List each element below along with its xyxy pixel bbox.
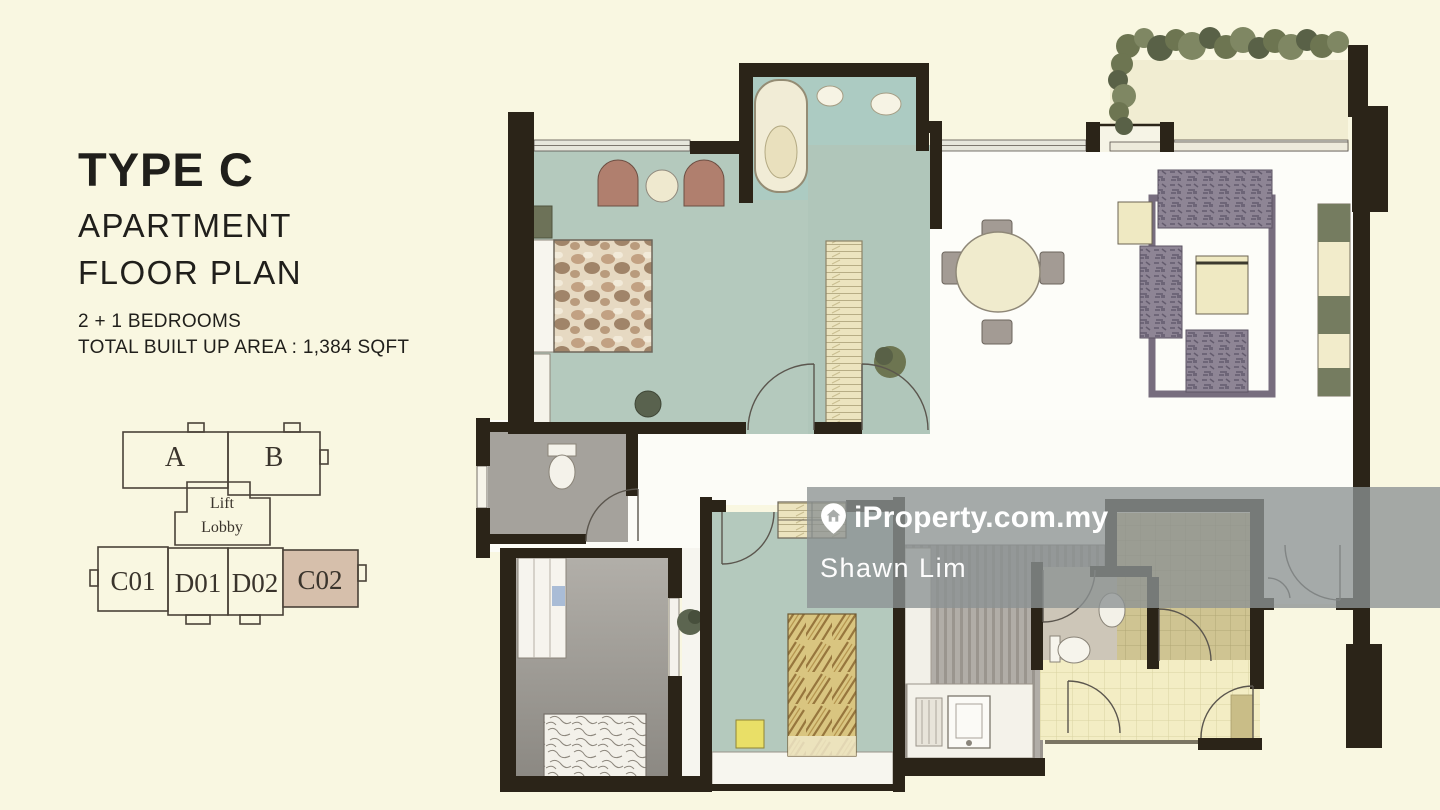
balcony-sliding-door: [1110, 142, 1348, 151]
bedroom3-plant-inner: [688, 610, 702, 624]
tv-console-plant-2: [1318, 296, 1350, 334]
bedroom3-door-leaf: [669, 598, 679, 678]
basin-2: [871, 93, 901, 115]
wall-right-column: [1346, 644, 1382, 748]
wall-yard-bottom-right: [1198, 738, 1262, 750]
wall-bed3-right-top: [668, 548, 682, 598]
bedroom3-bed: [544, 714, 646, 782]
yard-floor: [1040, 660, 1260, 740]
floor-plan: [0, 0, 1440, 810]
key-plan-unit-b: B: [265, 442, 284, 473]
wall-entry-jamb-left: [1086, 122, 1100, 152]
wall-step: [916, 121, 942, 133]
wall-tub-right: [916, 63, 929, 151]
wall-right-mid: [1353, 212, 1370, 434]
wall-foyer-left-bottom: [476, 508, 490, 558]
wall-bath2-right: [626, 424, 638, 496]
side-table-round: [646, 170, 678, 202]
wall-entry-jamb-right: [1160, 122, 1174, 152]
info-panel: TYPE C APARTMENT FLOOR PLAN 2 + 1 BEDROO…: [78, 146, 409, 360]
bedroom2-bed: [788, 614, 856, 756]
armchair-living: [1186, 330, 1248, 392]
bathtub-basin: [765, 126, 797, 178]
wall-bed3-left: [500, 548, 516, 792]
armchair-1: [598, 160, 638, 206]
corridor-plant-inner: [875, 347, 893, 365]
wall-kitchen-bottom: [893, 758, 1045, 776]
bedroom-gap-floor: [682, 548, 700, 788]
dining-chair-bottom: [982, 320, 1012, 344]
wall-bed2-bottom-line: [700, 784, 905, 791]
wall-suite-bottom-mid: [814, 422, 862, 434]
key-plan-lobby-line1: Lift: [210, 495, 235, 512]
key-plan-unit-a: A: [165, 442, 186, 473]
built-up-area: TOTAL BUILT UP AREA : 1,384 SQFT: [78, 335, 409, 361]
key-plan-unit-c02: C02: [297, 565, 342, 595]
tv-console-plant-1: [1318, 204, 1350, 242]
listing-image: TYPE C APARTMENT FLOOR PLAN 2 + 1 BEDROO…: [0, 0, 1440, 810]
wall-bed3-top: [500, 548, 668, 558]
wall-bath2-top: [486, 422, 638, 432]
key-plan-lobby-line2: Lobby: [201, 519, 243, 536]
wall-master-left: [508, 112, 534, 434]
coffee-table: [1196, 256, 1248, 314]
plan-subtitle-floorplan: FLOOR PLAN: [78, 256, 409, 289]
bedroom-count: 2 + 1 BEDROOMS: [78, 309, 409, 335]
pouf: [635, 391, 661, 417]
wall-tub-top: [739, 63, 929, 77]
dining-chair-right: [1040, 252, 1064, 284]
bedroom2-ledge: [712, 752, 893, 786]
iproperty-pin-icon: [820, 502, 847, 535]
plan-type-title: TYPE C: [78, 146, 409, 193]
wall-tub-left: [739, 63, 753, 203]
wall-living-left: [930, 133, 942, 229]
master-bed: [554, 240, 652, 352]
watermark-brand-row: iProperty.com.my: [820, 501, 1108, 535]
sofa-top: [1158, 170, 1272, 228]
yard-drain-tile: [1231, 695, 1253, 740]
watermark-band: iProperty.com.my Shawn Lim: [807, 487, 1440, 608]
dining-table: [956, 232, 1040, 312]
basin-1: [817, 86, 843, 106]
bathroom2-window: [477, 466, 487, 508]
bedroom2-bed-sheet: [788, 736, 856, 756]
wall-bed2-left: [700, 497, 712, 792]
bathroom2-fixtures: [548, 444, 576, 489]
toilet-bowl-3: [1058, 637, 1090, 663]
tv-console-plant-3: [1318, 368, 1350, 396]
bedroom2-nightstand: [736, 720, 764, 748]
toilet-tank-2: [548, 444, 576, 456]
unit-c02-notch: [358, 565, 366, 581]
bedroom3-wardrobe: [518, 558, 566, 658]
watermark-brand: iProperty.com.my: [854, 501, 1108, 535]
wardrobe-card: [552, 586, 565, 606]
toilet-bowl-2: [549, 455, 575, 489]
wardrobe: [826, 241, 862, 429]
key-plan-unit-d02: D02: [232, 568, 279, 598]
armchair-2: [684, 160, 724, 206]
watermark-agent: Shawn Lim: [820, 553, 967, 584]
wall-bed3-right-bottom: [668, 676, 682, 792]
plan-subtitle-apartment: APARTMENT: [78, 209, 409, 242]
key-plan-unit-d01: D01: [175, 568, 222, 598]
wall-bed2-top-stub: [712, 500, 726, 512]
appliance-knob: [966, 740, 972, 746]
sofa-left: [1140, 246, 1182, 338]
wall-bath2-bottom: [486, 534, 586, 544]
key-plan: A B Lift Lobby C01 D01 D02 C02: [88, 410, 380, 650]
wall-right-block: [1352, 106, 1388, 212]
key-plan-unit-c01: C01: [110, 566, 155, 596]
side-table: [1118, 202, 1152, 244]
